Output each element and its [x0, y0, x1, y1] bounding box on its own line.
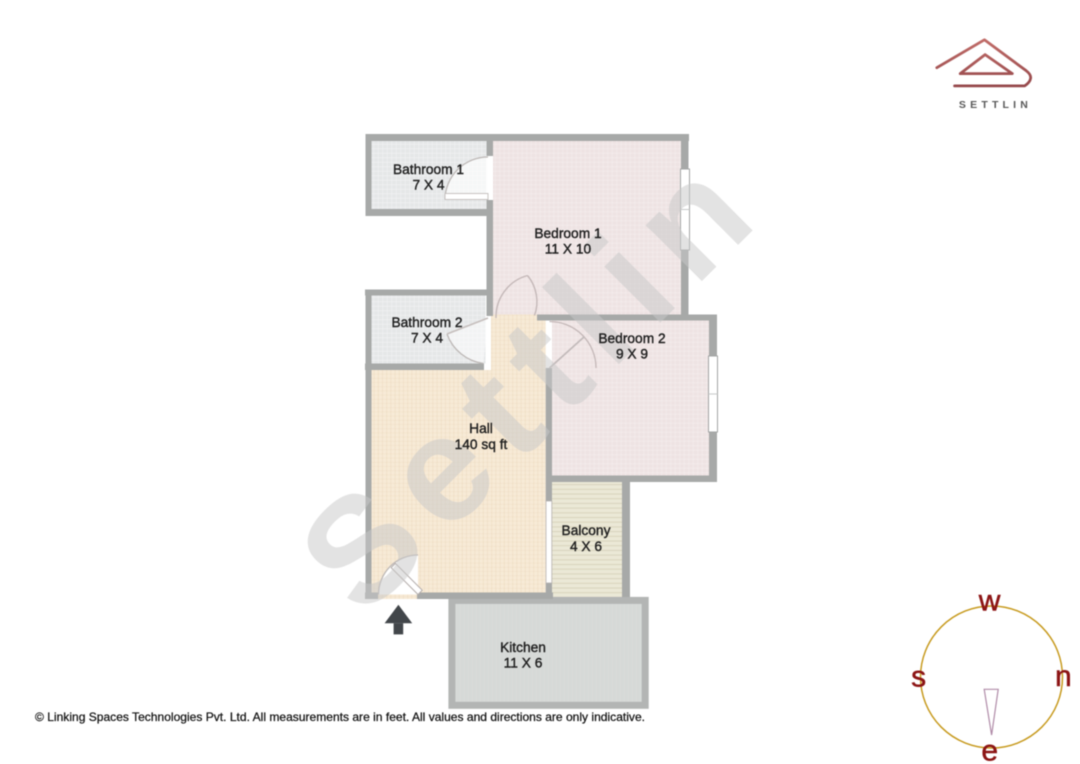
svg-text:Hall: Hall — [469, 421, 493, 436]
svg-text:e: e — [981, 734, 998, 764]
svg-text:9 X 9: 9 X 9 — [616, 347, 648, 362]
svg-text:Bathroom 2: Bathroom 2 — [391, 315, 462, 330]
svg-text:140 sq ft: 140 sq ft — [455, 437, 508, 452]
svg-text:11 X 6: 11 X 6 — [504, 656, 543, 671]
svg-text:Kitchen: Kitchen — [500, 640, 546, 655]
svg-text:Bedroom 2: Bedroom 2 — [598, 331, 665, 346]
svg-text:7 X 4: 7 X 4 — [412, 178, 444, 193]
svg-text:Bedroom 1: Bedroom 1 — [534, 226, 601, 241]
svg-text:n: n — [1055, 660, 1072, 693]
svg-text:7 X 4: 7 X 4 — [411, 331, 443, 346]
svg-text:Bathroom 1: Bathroom 1 — [393, 162, 464, 177]
svg-text:11 X 10: 11 X 10 — [545, 242, 592, 257]
svg-text:s: s — [911, 660, 926, 693]
svg-text:4 X 6: 4 X 6 — [570, 539, 602, 554]
svg-text:SETTLIN: SETTLIN — [959, 99, 1032, 111]
svg-text:© Linking Spaces Technologies: © Linking Spaces Technologies Pvt. Ltd. … — [35, 710, 645, 724]
svg-text:w: w — [978, 584, 1001, 617]
svg-text:Balcony: Balcony — [562, 523, 611, 538]
